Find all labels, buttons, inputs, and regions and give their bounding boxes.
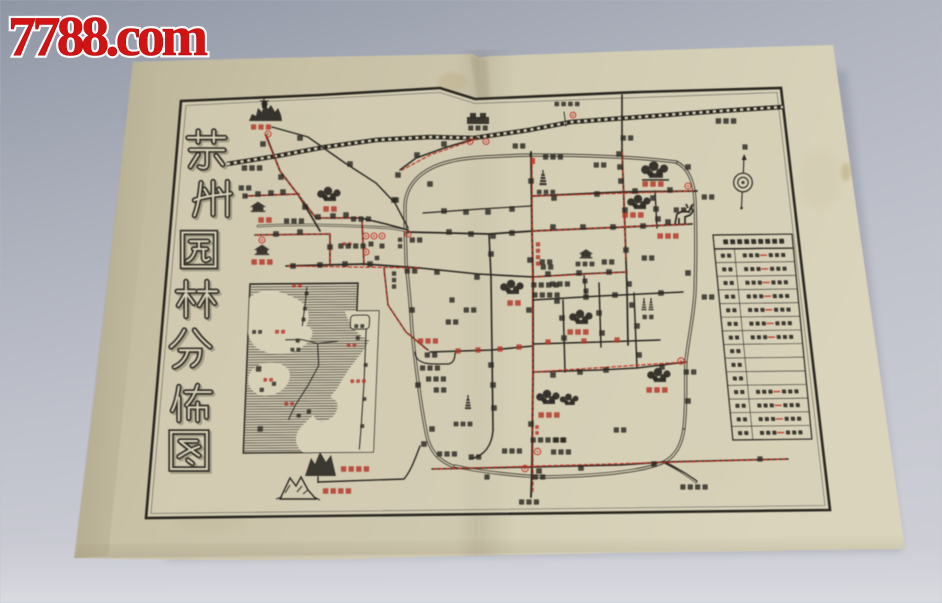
svg-text:7788.com: 7788.com: [8, 6, 208, 68]
